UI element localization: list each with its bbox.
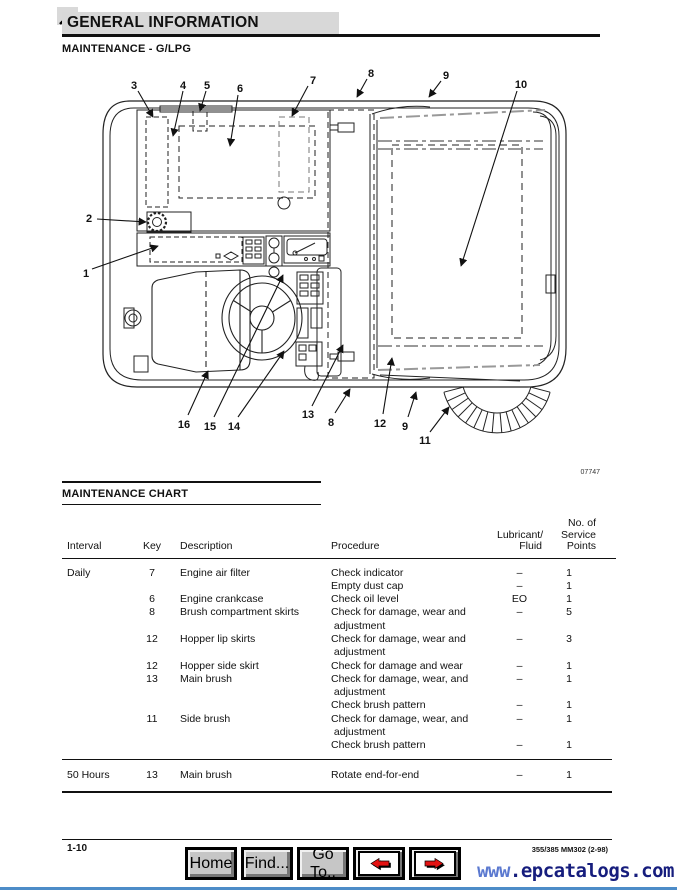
chart-rule-top	[62, 481, 321, 483]
cell-points: 1	[542, 769, 604, 782]
cell-points	[542, 686, 604, 699]
forward-button[interactable]	[409, 847, 461, 880]
control-console	[296, 268, 341, 380]
chart-rule-under-title	[62, 504, 321, 506]
cell-fluid: –	[497, 673, 542, 686]
callout-11: 11	[419, 435, 431, 447]
cell-description: Main brush	[175, 769, 327, 782]
col-description: Description	[175, 541, 327, 553]
callout-14: 14	[228, 421, 241, 433]
table-row: Check brush pattern – 1	[62, 699, 616, 712]
cell-points: 1	[542, 739, 604, 752]
page-number: 1-10	[67, 843, 87, 854]
cell-points	[542, 620, 604, 633]
cell-fluid	[497, 686, 542, 699]
cell-interval	[67, 739, 129, 752]
bottom-accent-line	[0, 887, 677, 890]
cell-description: Brush compartment skirts	[175, 606, 327, 619]
table-row: 6 Engine crankcase Check oil level EO 1	[62, 593, 616, 606]
cell-procedure: Check for damage and wear	[327, 660, 497, 673]
cell-interval	[67, 646, 129, 659]
cell-interval	[67, 713, 129, 726]
cell-description	[175, 580, 327, 593]
callout-12: 12	[374, 418, 386, 430]
left-latch	[124, 308, 148, 372]
table-row: adjustment	[62, 620, 616, 633]
cell-interval	[67, 620, 129, 633]
side-brush	[444, 387, 550, 433]
cell-key: 12	[129, 633, 175, 646]
cell-interval	[67, 660, 129, 673]
cell-fluid	[497, 620, 542, 633]
cell-interval	[67, 633, 129, 646]
back-button[interactable]	[353, 847, 405, 880]
hopper	[328, 106, 556, 381]
cell-interval	[67, 606, 129, 619]
cell-procedure: Check brush pattern	[327, 699, 497, 712]
cell-points: 1	[542, 713, 604, 726]
maintenance-points-diagram: 3 4 5 6 7 8 9 10 2 1 16 15 14 13 8 12 9 …	[0, 60, 677, 480]
cell-key: 6	[129, 593, 175, 606]
callout-3: 3	[131, 80, 137, 92]
cell-procedure: adjustment	[327, 646, 497, 659]
cell-points: 5	[542, 606, 604, 619]
col-fluid: Lubricant/ Fluid	[497, 530, 542, 553]
callout-16: 16	[178, 419, 190, 431]
watermark-suffix: .epcatalogs.com	[510, 860, 674, 882]
cell-description	[175, 646, 327, 659]
cell-key	[129, 739, 175, 752]
callout-1: 1	[83, 268, 89, 280]
callout-13: 13	[302, 409, 314, 421]
chart-title: MAINTENANCE CHART	[62, 488, 616, 500]
cell-points: 1	[542, 660, 604, 673]
cell-interval	[67, 673, 129, 686]
table-row: adjustment	[62, 726, 616, 739]
pdf-nav-toolbar: Home Find... Go To..	[185, 847, 461, 880]
find-button[interactable]: Find...	[241, 847, 293, 880]
cell-description	[175, 699, 327, 712]
cell-interval	[67, 686, 129, 699]
cell-fluid: –	[497, 660, 542, 673]
cell-fluid: –	[497, 713, 542, 726]
cell-points: 1	[542, 580, 604, 593]
chart-rule-bottom	[62, 791, 612, 793]
page-subtitle: MAINTENANCE - G/LPG	[62, 43, 191, 55]
cell-key: 13	[129, 769, 175, 782]
col-points: No. of Service Points	[542, 518, 604, 553]
cell-fluid: –	[497, 580, 542, 593]
cell-procedure: adjustment	[327, 620, 497, 633]
footer-rule	[62, 839, 612, 840]
table-row: Daily 7 Engine air filter Check indicato…	[62, 567, 616, 580]
callout-9-bottom: 9	[402, 421, 408, 433]
cell-description: Main brush	[175, 673, 327, 686]
cell-points	[542, 726, 604, 739]
seat	[152, 270, 250, 372]
header-rule	[62, 34, 600, 37]
cell-description	[175, 686, 327, 699]
chart-header-row: Interval Key Description Procedure Lubri…	[62, 518, 616, 559]
cell-points: 1	[542, 567, 604, 580]
home-button[interactable]: Home	[185, 847, 237, 880]
table-row: adjustment	[62, 686, 616, 699]
cell-points: 3	[542, 633, 604, 646]
forward-icon	[414, 851, 456, 876]
back-icon	[358, 851, 400, 876]
cell-points	[542, 646, 604, 659]
cell-key	[129, 686, 175, 699]
cell-points: 1	[542, 593, 604, 606]
callout-8-bottom: 8	[328, 417, 334, 429]
col-interval: Interval	[67, 541, 129, 553]
callout-15: 15	[204, 421, 216, 433]
callout-4: 4	[180, 80, 187, 92]
manual-page: GENERAL INFORMATION MAINTENANCE - G/LPG	[0, 0, 677, 893]
table-row: 50 Hours 13 Main brush Rotate end-for-en…	[62, 769, 616, 782]
cell-procedure: Check brush pattern	[327, 739, 497, 752]
table-row: 8 Brush compartment skirts Check for dam…	[62, 606, 616, 619]
cell-key	[129, 620, 175, 633]
cell-fluid: –	[497, 739, 542, 752]
cell-procedure: Check for damage, wear, and	[327, 673, 497, 686]
callout-6: 6	[237, 83, 243, 95]
cell-fluid: –	[497, 567, 542, 580]
cell-procedure: Empty dust cap	[327, 580, 497, 593]
cell-description: Hopper side skirt	[175, 660, 327, 673]
callout-7: 7	[310, 75, 316, 87]
table-row: 12 Hopper lip skirts Check for damage, w…	[62, 633, 616, 646]
cell-fluid: –	[497, 769, 542, 782]
table-row: Check brush pattern – 1	[62, 739, 616, 752]
cell-description	[175, 620, 327, 633]
table-row: adjustment	[62, 646, 616, 659]
cell-key	[129, 699, 175, 712]
cell-procedure: Check indicator	[327, 567, 497, 580]
cell-fluid: –	[497, 606, 542, 619]
col-procedure: Procedure	[327, 541, 497, 553]
cell-procedure: Check for damage, wear and	[327, 633, 497, 646]
cell-key	[129, 580, 175, 593]
cell-interval: 50 Hours	[67, 769, 129, 782]
cell-procedure: Rotate end-for-end	[327, 769, 497, 782]
table-row: 13 Main brush Check for damage, wear, an…	[62, 673, 616, 686]
cell-fluid	[497, 726, 542, 739]
cell-description: Hopper lip skirts	[175, 633, 327, 646]
cell-procedure: Check for damage, wear and	[327, 606, 497, 619]
callout-5: 5	[204, 80, 210, 92]
cell-fluid: EO	[497, 593, 542, 606]
cell-key	[129, 726, 175, 739]
cell-description: Engine crankcase	[175, 593, 327, 606]
cell-key: 12	[129, 660, 175, 673]
watermark: www.epcatalogs.com	[477, 860, 674, 882]
cell-interval	[67, 699, 129, 712]
cell-interval	[67, 726, 129, 739]
cell-key: 7	[129, 567, 175, 580]
cell-procedure: adjustment	[327, 726, 497, 739]
cell-procedure: adjustment	[327, 686, 497, 699]
cell-description	[175, 739, 327, 752]
table-row: Empty dust cap – 1	[62, 580, 616, 593]
cell-procedure: Check oil level	[327, 593, 497, 606]
cell-interval	[67, 580, 129, 593]
figure-number: 07747	[581, 469, 601, 476]
cell-fluid: –	[497, 699, 542, 712]
cell-points: 1	[542, 673, 604, 686]
callout-2: 2	[86, 213, 92, 225]
callout-8-top: 8	[368, 68, 374, 80]
doc-reference: 355/385 MM302 (2-98)	[532, 845, 608, 854]
cell-key: 11	[129, 713, 175, 726]
cell-key: 8	[129, 606, 175, 619]
cell-key	[129, 646, 175, 659]
maintenance-chart: MAINTENANCE CHART Interval Key Descripti…	[62, 481, 616, 793]
col-key: Key	[129, 541, 175, 553]
cell-procedure: Check for damage, wear, and	[327, 713, 497, 726]
cell-description	[175, 726, 327, 739]
watermark-prefix: www	[477, 860, 510, 882]
cell-description: Engine air filter	[175, 567, 327, 580]
table-row: 11 Side brush Check for damage, wear, an…	[62, 713, 616, 726]
cell-fluid: –	[497, 633, 542, 646]
cell-points: 1	[542, 699, 604, 712]
cell-interval: Daily	[67, 567, 129, 580]
machine-outline	[103, 101, 566, 387]
cell-description: Side brush	[175, 713, 327, 726]
cell-interval	[67, 593, 129, 606]
cell-key: 13	[129, 673, 175, 686]
section-header-bar: GENERAL INFORMATION	[62, 12, 339, 34]
callout-9-top: 9	[443, 70, 449, 82]
table-row: 12 Hopper side skirt Check for damage an…	[62, 660, 616, 673]
chart-section-50hours: 50 Hours 13 Main brush Rotate end-for-en…	[62, 760, 616, 791]
goto-button[interactable]: Go To..	[297, 847, 349, 880]
chart-section-daily: Daily 7 Engine air filter Check indicato…	[62, 559, 616, 759]
callout-10: 10	[515, 79, 527, 91]
cell-fluid	[497, 646, 542, 659]
page-title: GENERAL INFORMATION	[62, 14, 259, 32]
